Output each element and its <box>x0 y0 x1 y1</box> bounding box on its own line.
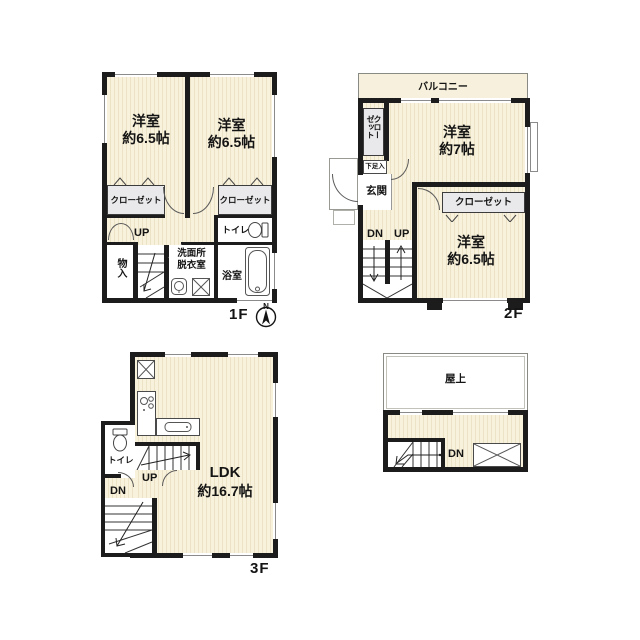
window <box>165 352 191 357</box>
closet-label: クローゼット <box>455 198 512 208</box>
storage-label: 物入 <box>115 258 125 278</box>
window <box>228 352 258 357</box>
room-size: 約6.5帖 <box>447 251 494 269</box>
room-size: 約6.5帖 <box>122 130 169 148</box>
closet-1f-right: クローゼット <box>218 185 272 215</box>
window-bay-2f <box>530 122 538 172</box>
window <box>273 383 278 417</box>
washroom-line1: 洗面所 <box>177 248 206 260</box>
window <box>115 72 157 77</box>
stairs-dn-label: DN <box>110 486 126 497</box>
room-name: 洋室 <box>132 113 160 131</box>
bath-label: 浴室 <box>222 272 242 282</box>
room-name: 洋室 <box>457 234 485 252</box>
stairs-icon <box>388 442 441 467</box>
wall-segment <box>412 182 525 187</box>
window <box>400 410 422 415</box>
kitchen-sink-counter-3f <box>156 418 200 436</box>
toilet-label: トイレ <box>108 456 134 465</box>
roof-label: 屋上 <box>384 374 527 385</box>
stairs-icon <box>138 245 164 298</box>
stairs-3f-down <box>105 498 157 553</box>
balcony-label: バルコニー <box>418 83 468 93</box>
stairs-roof <box>388 442 441 467</box>
washroom-label: 洗面所 脱衣室 <box>169 249 214 271</box>
washbasin-icon <box>171 277 188 296</box>
closet-2f: クローゼット <box>442 192 525 213</box>
closet-2f-vertical: クロー ゼット <box>363 108 384 156</box>
room-label-2f-top: 洋室 約7帖 <box>389 109 525 173</box>
storage-room-1f: 物入 <box>107 245 133 298</box>
wall-segment <box>107 215 165 218</box>
stairs-dn-label: DN <box>448 449 464 460</box>
washing-machine-icon <box>192 278 210 296</box>
door-arc <box>163 187 184 214</box>
window <box>272 253 277 289</box>
bathroom-1f: 浴室 <box>218 245 272 298</box>
room-name: 洋室 <box>218 117 246 135</box>
folding-door-icon <box>445 214 459 222</box>
toilet-label: トイレ <box>222 226 249 235</box>
stairs-dn-label: DN <box>367 229 383 240</box>
kitchen-counter-3f <box>137 391 156 436</box>
door-arc <box>391 159 409 180</box>
compass-n-letter: N <box>263 302 269 311</box>
room-label-2f-bottom: 洋室 約6.5帖 <box>417 223 525 279</box>
closet-label-col2: ゼット <box>366 115 374 139</box>
door-arc <box>162 470 177 486</box>
plan-1f: クローゼット クローゼット 洋室 約6.5帖 洋室 約6.5帖 トイレ <box>102 72 277 303</box>
roof-deck: 屋上 <box>383 353 528 412</box>
door-opening <box>358 175 363 205</box>
shoe-cabinet-2f: 下足入 <box>363 160 387 174</box>
cross-box-icon <box>473 443 521 467</box>
floor-label-1f: 1F <box>229 306 249 323</box>
stairs-1f <box>138 245 164 298</box>
window <box>183 553 212 558</box>
wall-segment <box>185 77 190 218</box>
cross-box-icon <box>137 360 155 379</box>
toilet-room-1f: トイレ <box>218 218 272 242</box>
folding-door-icon <box>503 214 517 222</box>
roof-stair-block: DN <box>383 410 528 472</box>
window <box>443 298 507 303</box>
room-size: 約6.5帖 <box>208 134 255 152</box>
toilet-icon <box>109 427 131 453</box>
stove-icon <box>138 394 155 416</box>
window <box>439 98 511 103</box>
entrance-step-2f <box>333 210 355 225</box>
wall-segment <box>385 240 390 284</box>
folding-door-icon <box>113 177 157 185</box>
bathtub-icon <box>245 247 270 296</box>
kitchen-sink-icon <box>157 419 199 435</box>
room-name: LDK <box>210 464 241 483</box>
room-size: 約7帖 <box>439 141 475 159</box>
floor-label-2f: 2F <box>504 305 524 322</box>
closet-1f-left: クローゼット <box>107 185 165 215</box>
window <box>272 95 277 157</box>
plan-2f: クロー ゼット 洋室 約7帖 下足入 玄関 クローゼット 洋室 約6.5帖 <box>358 98 530 303</box>
washroom-1f: 洗面所 脱衣室 <box>169 245 214 298</box>
wall-segment <box>427 303 442 310</box>
floor-label-3f: 3F <box>250 560 270 577</box>
stairs-up-label: UP <box>142 473 157 484</box>
room-label-ldk: LDK 約16.7帖 <box>187 461 263 503</box>
room-label-1f-left: 洋室 約6.5帖 <box>107 103 185 157</box>
folding-door-icon <box>222 177 266 185</box>
door-arc <box>193 187 214 214</box>
wall-segment <box>441 438 445 467</box>
room-size: 約16.7帖 <box>197 483 252 501</box>
window <box>230 553 253 558</box>
door-arc <box>121 223 134 240</box>
room-label-1f-right: 洋室 約6.5帖 <box>191 107 272 161</box>
door-arc <box>108 223 121 240</box>
stairs-up-label: UP <box>134 228 149 239</box>
window <box>102 95 107 143</box>
window <box>401 98 431 103</box>
shoe-cabinet-label: 下足入 <box>365 164 385 171</box>
window <box>273 503 278 539</box>
stairs-up-label: UP <box>394 229 409 240</box>
door-arc <box>418 188 440 210</box>
room-name: 洋室 <box>443 124 471 142</box>
washroom-line2: 脱衣室 <box>177 260 206 272</box>
entrance-2f: 玄関 <box>363 174 392 210</box>
toilet-icon <box>247 220 270 240</box>
window <box>210 72 254 77</box>
window <box>453 410 508 415</box>
compass-north-icon: N <box>252 300 280 330</box>
closet-label: クローゼット <box>110 196 161 205</box>
floorplan-canvas: クローゼット クローゼット 洋室 約6.5帖 洋室 約6.5帖 トイレ <box>0 0 640 640</box>
closet-label: クローゼット <box>219 196 270 205</box>
entrance-label: 玄関 <box>366 186 387 197</box>
